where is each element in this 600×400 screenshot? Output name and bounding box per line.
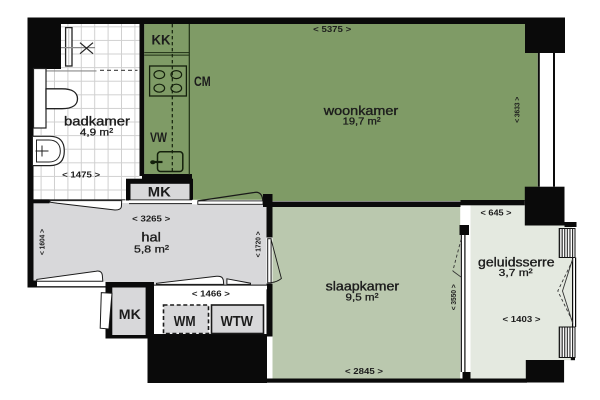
svg-text:KK: KK	[152, 32, 171, 48]
svg-text:9,5 m²: 9,5 m²	[346, 291, 380, 303]
svg-text:CM: CM	[194, 73, 211, 89]
svg-text:< 2845 >: < 2845 >	[345, 366, 383, 376]
svg-text:4,9 m²: 4,9 m²	[80, 127, 114, 139]
svg-text:VW: VW	[150, 129, 168, 145]
svg-text:< 1475 >: < 1475 >	[62, 170, 100, 180]
svg-text:MK: MK	[119, 307, 141, 322]
svg-text:< 3633 >: < 3633 >	[513, 96, 522, 123]
svg-text:MK: MK	[148, 185, 171, 200]
svg-text:< 5375 >: < 5375 >	[313, 24, 351, 34]
svg-text:WTW: WTW	[221, 314, 254, 330]
svg-text:< 1720 >: < 1720 >	[254, 231, 263, 258]
svg-text:< 1466 >: < 1466 >	[192, 288, 230, 298]
svg-text:< 1403 >: < 1403 >	[503, 314, 541, 324]
svg-text:5,8 m²: 5,8 m²	[134, 243, 170, 255]
svg-text:< 3265 >: < 3265 >	[132, 214, 170, 224]
svg-text:WM: WM	[174, 314, 196, 330]
svg-text:19,7 m²: 19,7 m²	[343, 116, 382, 128]
svg-text:< 3550 >: < 3550 >	[449, 284, 458, 311]
svg-text:3,7 m²: 3,7 m²	[499, 267, 534, 279]
svg-text:< 645 >: < 645 >	[481, 208, 512, 218]
svg-text:< 1604 >: < 1604 >	[38, 228, 47, 255]
